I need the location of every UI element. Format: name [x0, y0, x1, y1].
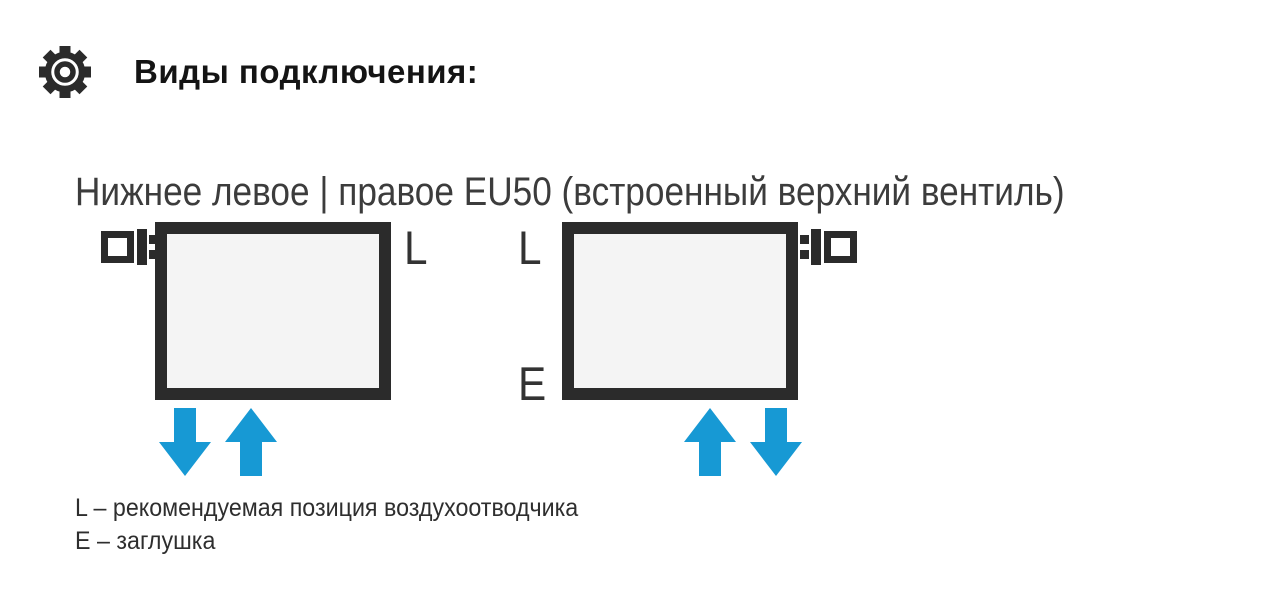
radiator-right — [562, 222, 798, 400]
gear-icon — [36, 44, 94, 100]
valve-fitting-left-icon — [101, 229, 158, 265]
page-title: Виды подключения: — [134, 53, 478, 91]
arrow-down-icon — [750, 408, 802, 476]
legend-line-air-vent: L – рекомендуемая позиция воздухоотводчи… — [75, 492, 578, 525]
arrow-down-icon — [159, 408, 211, 476]
legend-line-plug: E – заглушка — [75, 525, 578, 558]
plug-label-right: E — [518, 360, 546, 407]
air-vent-label-right: L — [518, 224, 542, 271]
section-subtitle: Нижнее левое | правое EU50 (встроенный в… — [75, 170, 1065, 215]
legend: L – рекомендуемая позиция воздухоотводчи… — [75, 492, 578, 558]
arrow-up-icon — [684, 408, 736, 476]
air-vent-label-left: L — [404, 224, 428, 271]
radiator-left — [155, 222, 391, 400]
valve-fitting-right-icon — [800, 229, 857, 265]
arrow-up-icon — [225, 408, 277, 476]
connection-types-figure: Виды подключения: Нижнее левое | правое … — [0, 0, 1280, 589]
